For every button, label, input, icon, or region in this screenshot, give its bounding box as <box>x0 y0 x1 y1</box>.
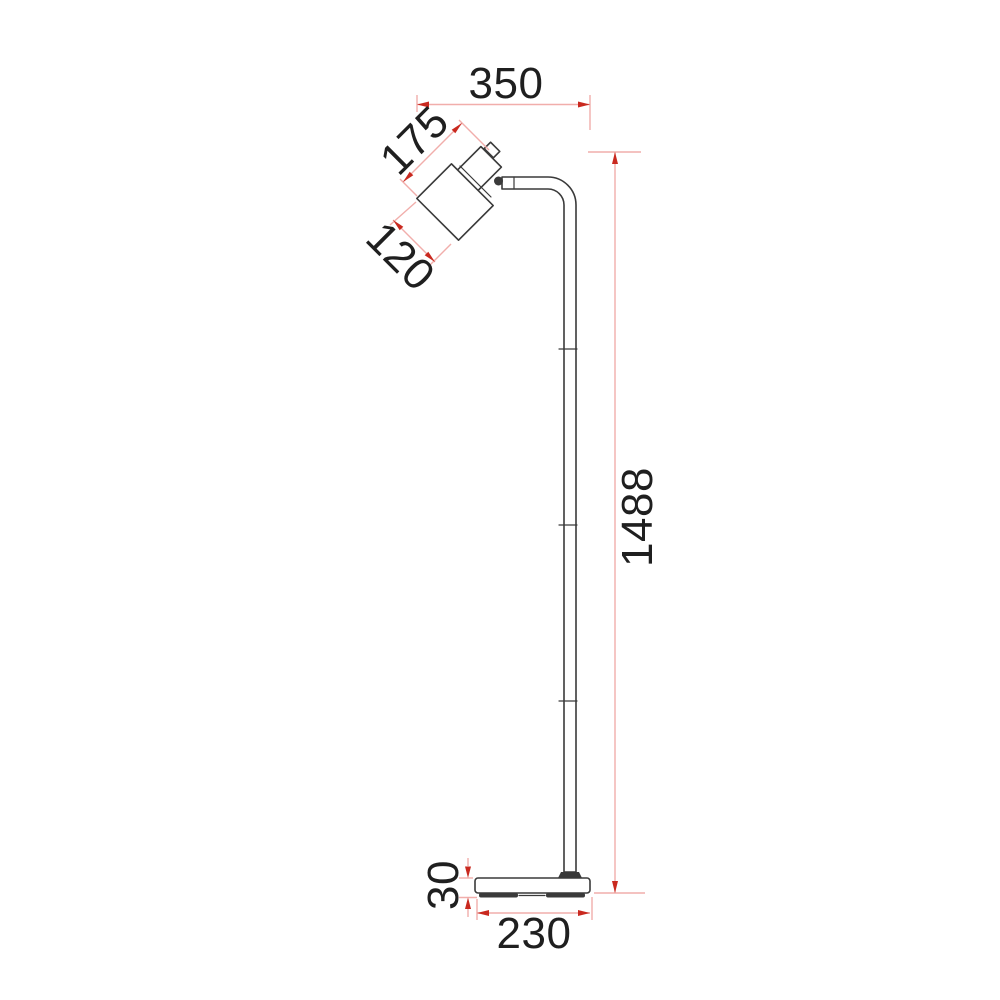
dim-30: 30 <box>419 858 477 917</box>
dim-1488: 1488 <box>588 152 662 893</box>
dim-230-arrow-left <box>477 910 489 916</box>
base-foot-left <box>479 893 518 898</box>
dim-350-arrow-right <box>578 102 590 108</box>
dim-350-label: 350 <box>469 59 544 108</box>
dim-230-label: 230 <box>497 909 572 958</box>
floor-lamp-diagram: 350 175 120 1488 30 <box>0 0 1000 1000</box>
dim-120-label: 120 <box>357 213 445 301</box>
dim-1488-arrow-top <box>612 152 618 164</box>
dim-230-arrow-right <box>578 910 590 916</box>
base-foot-right <box>546 893 585 898</box>
pole-base-collar <box>558 872 582 878</box>
dimension-drawing: 350 175 120 1488 30 <box>0 0 1000 1000</box>
dim-175-ext-upper <box>459 120 489 150</box>
head-pivot-joint <box>494 177 503 186</box>
dim-1488-arrow-bottom <box>612 881 618 893</box>
dim-1488-label: 1488 <box>613 467 662 567</box>
dim-30-label: 30 <box>419 860 468 910</box>
lamp-outline <box>417 142 590 897</box>
lamp-base <box>475 878 590 893</box>
dim-230: 230 <box>477 897 592 958</box>
